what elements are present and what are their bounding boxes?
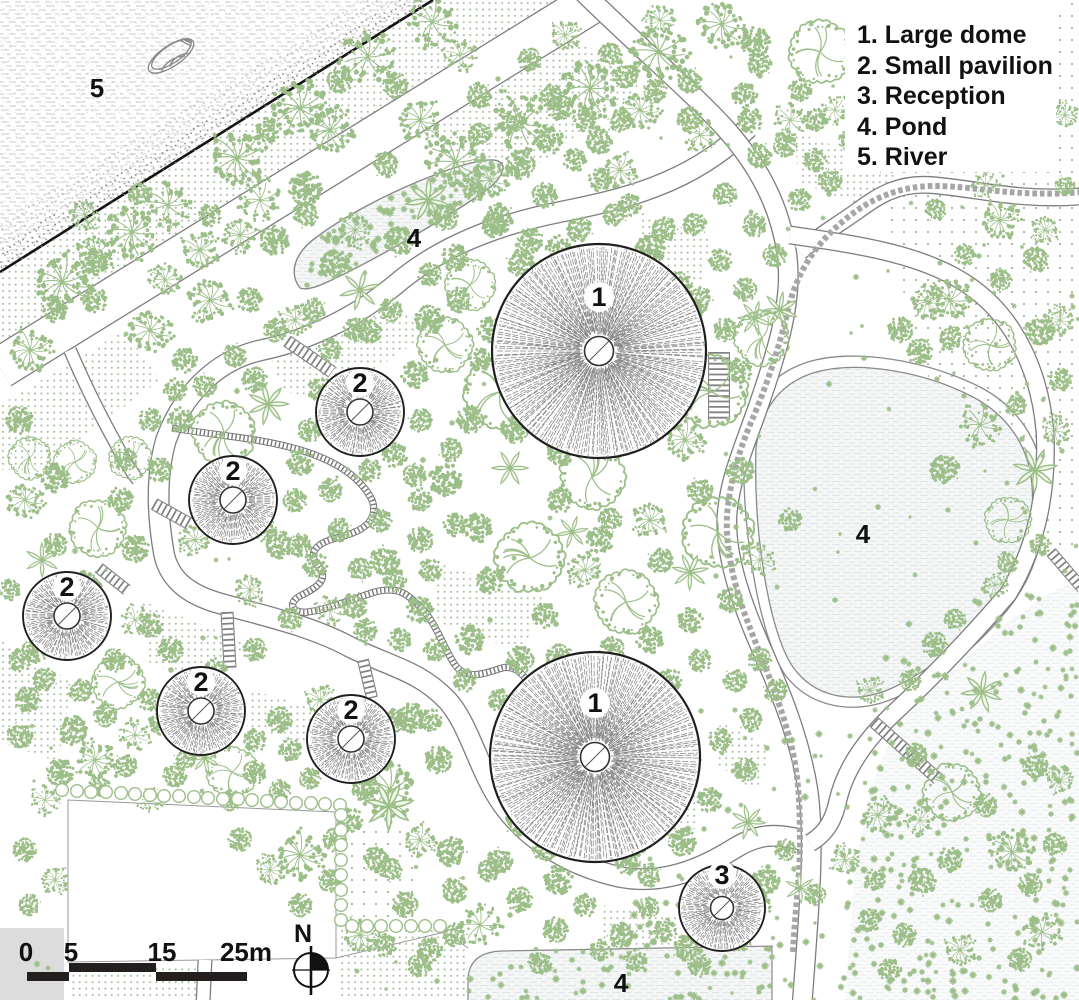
svg-text:5: 5 [64,937,78,967]
svg-text:4: 4 [407,223,422,253]
svg-text:25m: 25m [220,937,272,967]
svg-text:3: 3 [714,860,729,890]
svg-text:2: 2 [343,695,358,725]
svg-text:1: 1 [591,282,606,312]
svg-text:4: 4 [856,519,871,549]
svg-text:2: 2 [59,572,74,602]
svg-text:15: 15 [148,937,177,967]
svg-text:2: 2 [225,456,240,486]
svg-text:3. Reception: 3. Reception [857,82,1006,110]
svg-text:1: 1 [587,688,602,718]
svg-text:2: 2 [193,667,208,697]
svg-text:0: 0 [19,937,33,967]
svg-text:2: 2 [352,368,367,398]
svg-text:4. Pond: 4. Pond [857,113,947,141]
svg-text:5. River: 5. River [857,143,948,171]
svg-text:N: N [294,920,312,948]
svg-text:1. Large dome: 1. Large dome [857,21,1027,49]
svg-text:4: 4 [614,968,629,998]
svg-text:2. Small pavilion: 2. Small pavilion [857,52,1053,80]
svg-text:5: 5 [90,73,104,103]
